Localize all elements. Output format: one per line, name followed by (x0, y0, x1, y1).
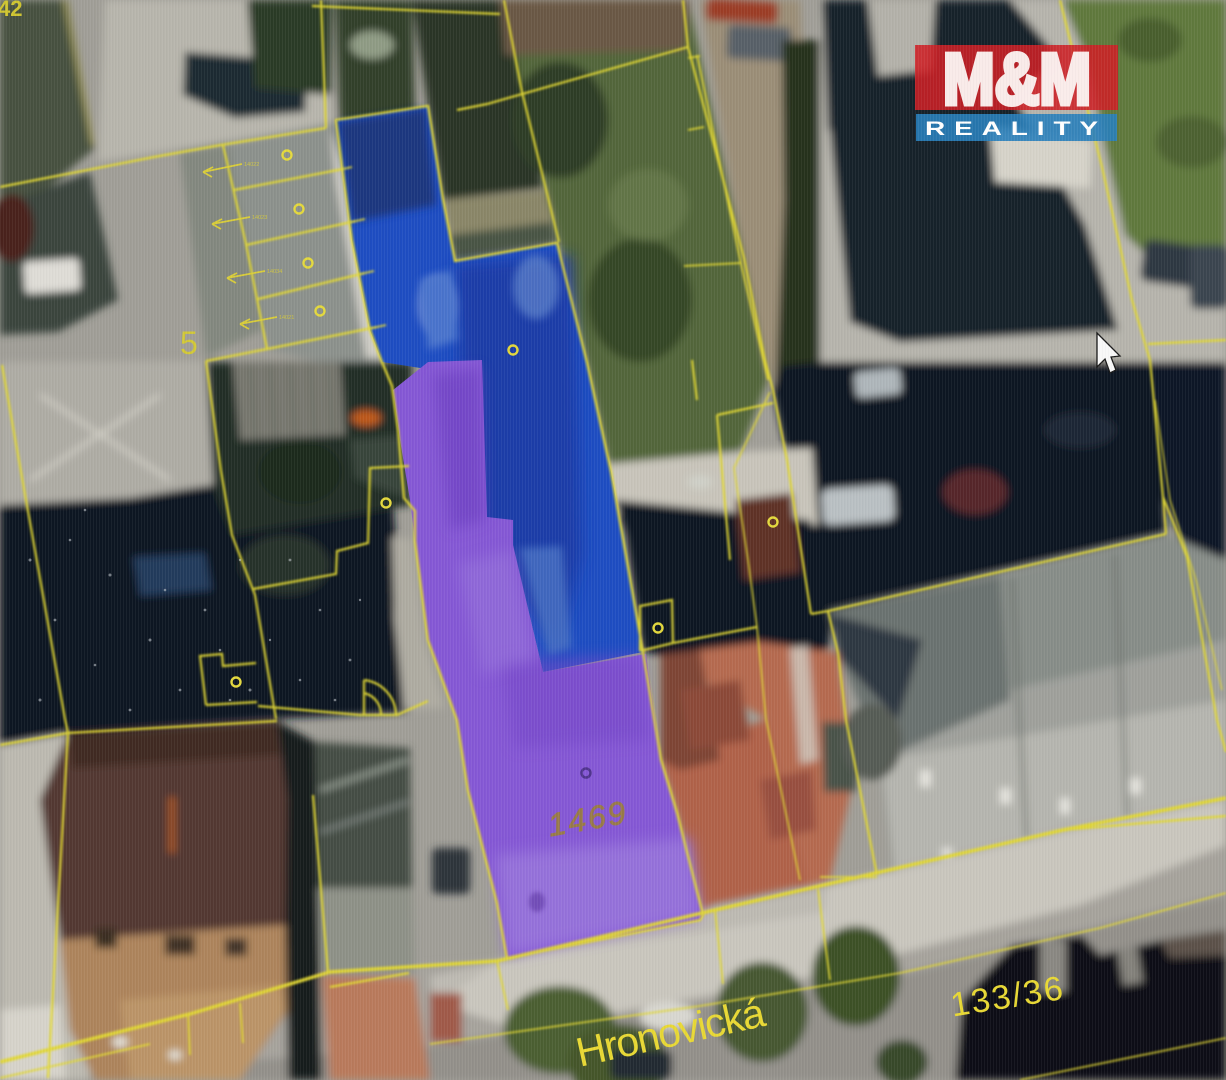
svg-text:14034: 14034 (267, 269, 282, 275)
svg-text:14022: 14022 (244, 162, 259, 168)
svg-text:REALITY: REALITY (925, 119, 1107, 140)
svg-text:M&M: M&M (943, 40, 1091, 120)
svg-text:5: 5 (180, 325, 198, 361)
svg-text:14021: 14021 (279, 315, 294, 321)
svg-text:14023: 14023 (252, 215, 267, 221)
svg-text:42: 42 (0, 0, 22, 21)
